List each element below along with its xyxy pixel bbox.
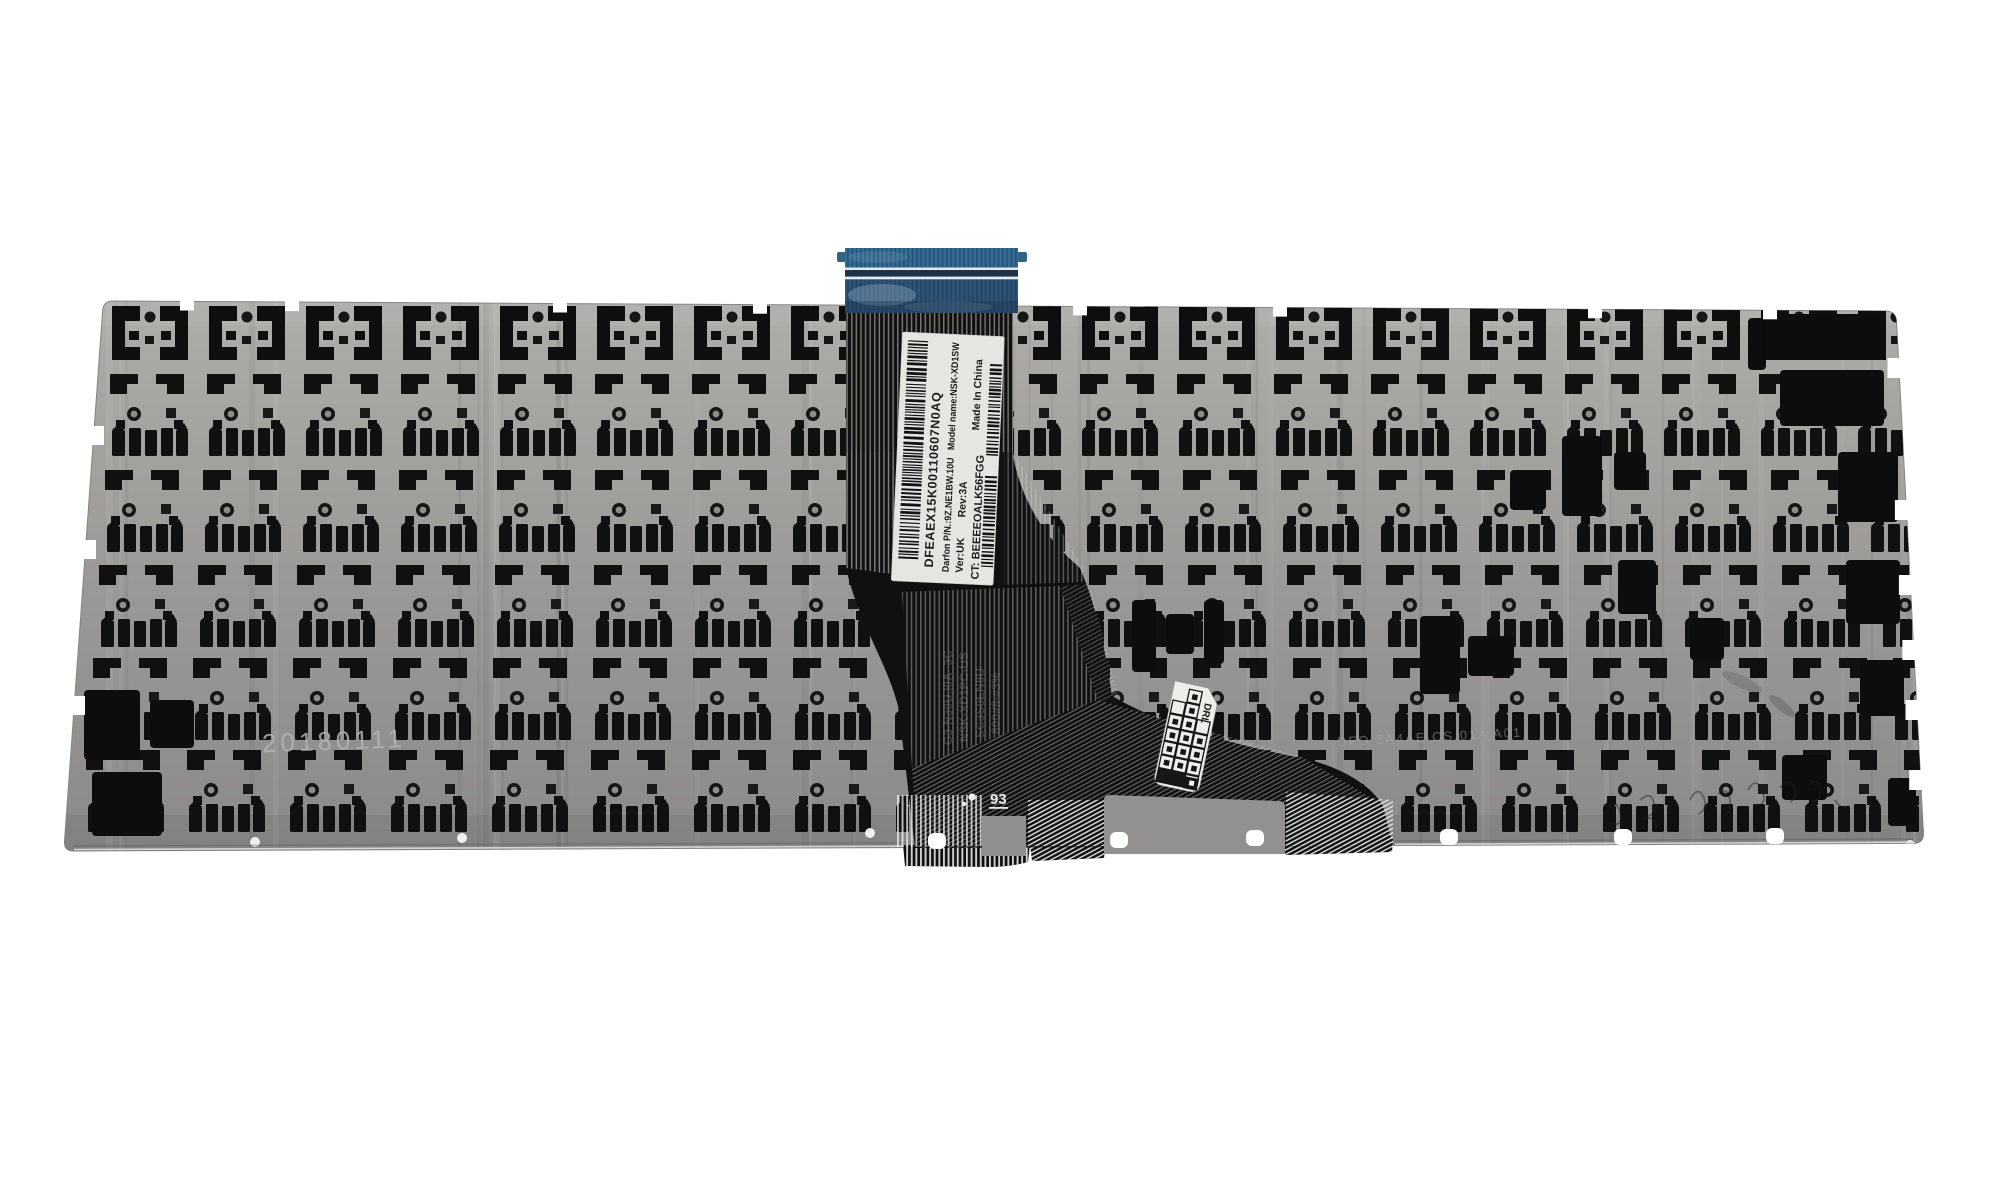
svg-text:SC3S0EN8U: SC3S0EN8U	[973, 668, 987, 738]
svg-text:20180111: 20180111	[262, 723, 407, 758]
svg-text:93: 93	[990, 791, 1007, 808]
svg-text:G3-N30U.I0A 3C: G3-N30U.I0A 3C	[941, 650, 955, 745]
svg-text:800#8-#3%: 800#8-#3%	[989, 672, 1003, 734]
svg-text:NSK-XD1PC-US: NSK-XD1PC-US	[957, 652, 971, 742]
